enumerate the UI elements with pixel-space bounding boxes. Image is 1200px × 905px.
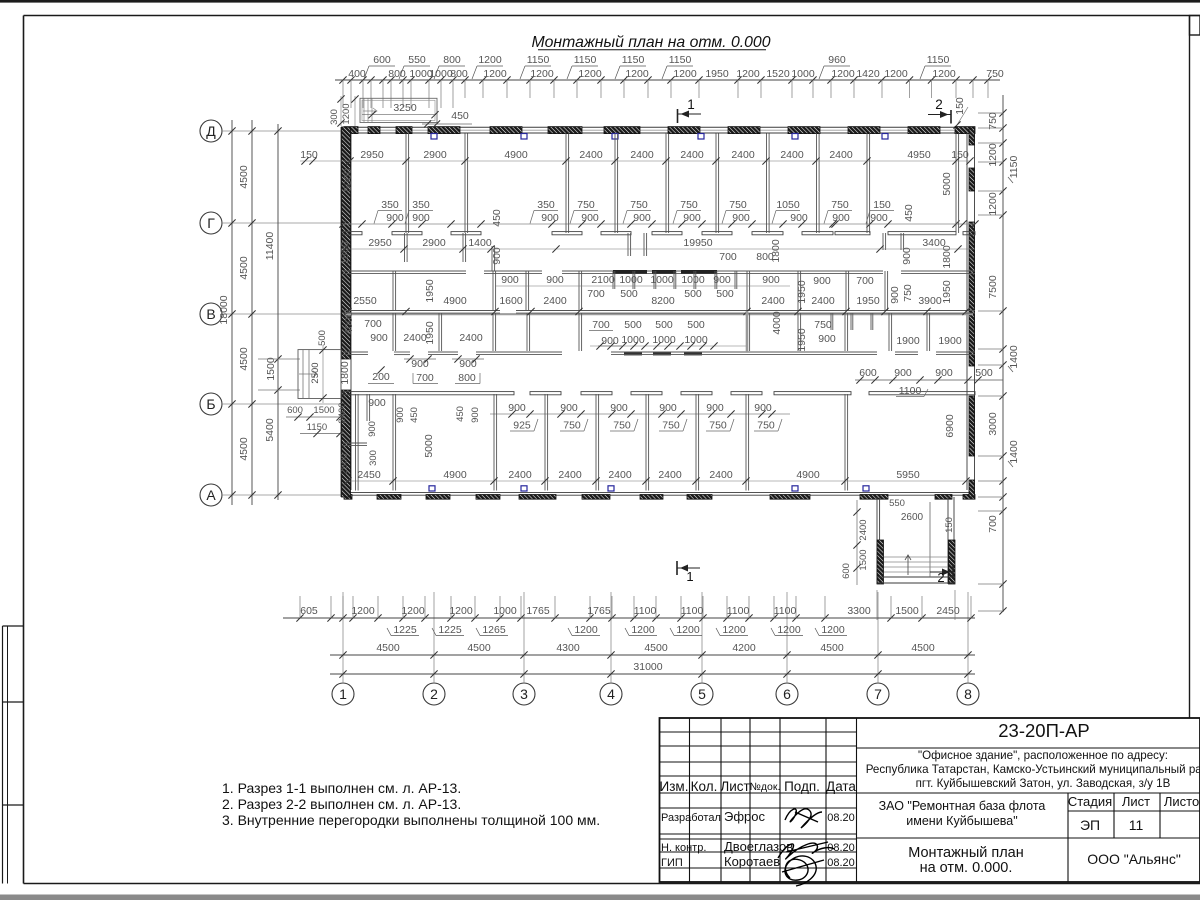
svg-text:700: 700 xyxy=(856,275,874,287)
svg-text:3: 3 xyxy=(520,686,528,702)
svg-text:4500: 4500 xyxy=(467,642,491,654)
svg-text:900: 900 xyxy=(935,367,953,379)
svg-text:19950: 19950 xyxy=(683,237,712,249)
svg-text:Листов: Листов xyxy=(1164,794,1200,809)
svg-text:900: 900 xyxy=(713,274,731,286)
svg-text:1200: 1200 xyxy=(736,68,760,80)
svg-text:900: 900 xyxy=(832,212,850,224)
svg-text:2550: 2550 xyxy=(353,295,377,307)
svg-text:2400: 2400 xyxy=(731,149,755,161)
svg-text:1500: 1500 xyxy=(858,549,869,570)
svg-text:В: В xyxy=(206,306,215,322)
svg-text:2600: 2600 xyxy=(901,512,924,523)
svg-text:1225: 1225 xyxy=(438,624,462,636)
svg-text:500: 500 xyxy=(317,330,328,346)
svg-text:1150: 1150 xyxy=(927,54,950,66)
svg-text:1200: 1200 xyxy=(777,624,801,636)
svg-text:1800: 1800 xyxy=(339,241,351,265)
svg-text:925: 925 xyxy=(513,420,531,432)
svg-text:№док.: №док. xyxy=(750,781,781,793)
svg-text:900: 900 xyxy=(581,212,599,224)
svg-text:4900: 4900 xyxy=(443,295,467,307)
svg-text:1: 1 xyxy=(686,569,693,584)
svg-text:4500: 4500 xyxy=(238,347,250,371)
svg-text:7500: 7500 xyxy=(987,275,999,299)
svg-text:3. Внутренние перегородки выпо: 3. Внутренние перегородки выполнены толщ… xyxy=(222,812,600,828)
svg-text:4900: 4900 xyxy=(443,469,467,481)
svg-text:500: 500 xyxy=(687,319,705,331)
svg-text:1500: 1500 xyxy=(313,405,334,416)
svg-text:1200: 1200 xyxy=(831,68,855,80)
svg-text:1950: 1950 xyxy=(796,328,808,352)
svg-text:750: 750 xyxy=(987,112,999,130)
svg-text:900: 900 xyxy=(706,402,724,414)
svg-text:2400: 2400 xyxy=(543,295,567,307)
svg-text:5000: 5000 xyxy=(342,168,354,192)
svg-text:2400: 2400 xyxy=(761,295,785,307)
svg-text:900: 900 xyxy=(386,212,404,224)
svg-text:2950: 2950 xyxy=(368,237,392,249)
svg-text:750: 750 xyxy=(709,420,727,432)
svg-text:Дата: Дата xyxy=(826,779,856,794)
svg-text:900: 900 xyxy=(610,402,628,414)
svg-text:Г: Г xyxy=(207,215,215,231)
svg-text:1500: 1500 xyxy=(895,605,919,617)
svg-text:1765: 1765 xyxy=(587,605,611,617)
svg-text:400: 400 xyxy=(348,68,366,80)
svg-text:5000: 5000 xyxy=(941,172,953,196)
svg-text:4500: 4500 xyxy=(376,642,400,654)
svg-text:1200: 1200 xyxy=(578,68,602,80)
svg-text:2400: 2400 xyxy=(658,469,682,481)
svg-text:1200: 1200 xyxy=(987,192,999,216)
svg-text:ЗАО "Ремонтная база флота: ЗАО "Ремонтная база флота xyxy=(879,799,1046,813)
svg-text:605: 605 xyxy=(300,605,318,617)
svg-text:1200: 1200 xyxy=(351,605,375,617)
svg-text:900: 900 xyxy=(395,407,406,423)
svg-text:4500: 4500 xyxy=(238,437,250,461)
svg-text:3250: 3250 xyxy=(393,102,417,114)
svg-text:6900: 6900 xyxy=(944,414,956,438)
svg-text:1600: 1600 xyxy=(499,295,523,307)
svg-text:700: 700 xyxy=(416,372,434,384)
svg-text:500: 500 xyxy=(655,319,673,331)
svg-text:4200: 4200 xyxy=(732,642,756,654)
svg-text:550: 550 xyxy=(889,498,905,509)
svg-text:750: 750 xyxy=(577,199,595,211)
svg-text:11: 11 xyxy=(1129,817,1144,833)
svg-text:"Офисное здание", расположенно: "Офисное здание", расположенное по адрес… xyxy=(918,749,1168,762)
svg-text:2900: 2900 xyxy=(423,149,447,161)
svg-text:1900: 1900 xyxy=(938,335,962,347)
svg-text:2100: 2100 xyxy=(591,274,615,286)
svg-text:ООО "Альянс": ООО "Альянс" xyxy=(1087,851,1181,867)
svg-text:8: 8 xyxy=(964,686,972,702)
svg-text:ЭП: ЭП xyxy=(1080,817,1100,833)
svg-text:1200: 1200 xyxy=(722,624,746,636)
svg-text:900: 900 xyxy=(732,212,750,224)
svg-text:1200: 1200 xyxy=(932,68,956,80)
svg-text:1000: 1000 xyxy=(791,68,815,80)
svg-text:1100: 1100 xyxy=(634,605,657,617)
svg-text:1200: 1200 xyxy=(987,143,999,167)
svg-text:500: 500 xyxy=(624,319,642,331)
svg-text:Разработал: Разработал xyxy=(661,812,721,824)
svg-text:450: 450 xyxy=(451,110,469,122)
svg-text:450: 450 xyxy=(903,204,915,222)
svg-text:900: 900 xyxy=(889,286,901,304)
svg-text:150: 150 xyxy=(954,97,966,115)
svg-text:1950: 1950 xyxy=(424,279,436,303)
svg-text:960: 960 xyxy=(828,54,846,66)
svg-text:4000: 4000 xyxy=(771,311,783,335)
svg-text:2450: 2450 xyxy=(936,605,960,617)
svg-text:750: 750 xyxy=(986,68,1004,80)
svg-text:1200: 1200 xyxy=(884,68,908,80)
svg-text:Н. контр.: Н. контр. xyxy=(661,842,706,854)
svg-text:150: 150 xyxy=(951,149,969,161)
svg-text:700: 700 xyxy=(987,515,999,533)
svg-text:900: 900 xyxy=(818,333,836,345)
svg-text:2400: 2400 xyxy=(709,469,733,481)
svg-text:900: 900 xyxy=(659,402,677,414)
svg-text:1150: 1150 xyxy=(1008,156,1020,179)
svg-text:Монтажный план: Монтажный план xyxy=(908,845,1024,861)
svg-text:600: 600 xyxy=(841,563,852,579)
svg-text:4950: 4950 xyxy=(907,149,931,161)
svg-text:750: 750 xyxy=(757,420,775,432)
svg-text:1200: 1200 xyxy=(401,605,425,617)
svg-text:2500: 2500 xyxy=(339,453,350,474)
svg-text:900: 900 xyxy=(459,358,477,370)
svg-text:750: 750 xyxy=(662,420,680,432)
svg-text:1200: 1200 xyxy=(821,624,845,636)
svg-text:2400: 2400 xyxy=(680,149,704,161)
svg-text:1200: 1200 xyxy=(483,68,507,80)
svg-text:900: 900 xyxy=(601,335,619,347)
svg-text:600: 600 xyxy=(373,54,391,66)
svg-text:5400: 5400 xyxy=(264,418,276,442)
svg-text:900: 900 xyxy=(790,212,808,224)
svg-text:800: 800 xyxy=(443,54,461,66)
svg-text:900: 900 xyxy=(411,358,429,370)
svg-text:450: 450 xyxy=(409,407,420,423)
svg-text:Эфрос: Эфрос xyxy=(724,809,765,824)
svg-text:200: 200 xyxy=(372,371,390,383)
svg-text:5950: 5950 xyxy=(896,469,920,481)
svg-text:2400: 2400 xyxy=(579,149,603,161)
svg-text:350: 350 xyxy=(412,199,430,211)
svg-text:750: 750 xyxy=(814,319,832,331)
svg-text:750: 750 xyxy=(729,199,747,211)
svg-text:150: 150 xyxy=(944,517,955,533)
svg-text:4500: 4500 xyxy=(644,642,668,654)
svg-text:1000: 1000 xyxy=(652,334,676,346)
svg-text:4300: 4300 xyxy=(556,642,580,654)
svg-text:Республика Татарстан, Камско-У: Республика Татарстан, Камско-Устьинский … xyxy=(866,763,1200,776)
svg-text:350: 350 xyxy=(537,199,555,211)
svg-text:2500: 2500 xyxy=(310,362,321,383)
svg-text:1225: 1225 xyxy=(393,624,417,636)
svg-text:750: 750 xyxy=(613,420,631,432)
svg-text:Д: Д xyxy=(206,123,216,139)
svg-text:имени Куйбышева": имени Куйбышева" xyxy=(906,814,1017,828)
svg-text:350: 350 xyxy=(381,199,399,211)
svg-text:900: 900 xyxy=(501,274,519,286)
svg-text:3000: 3000 xyxy=(987,412,999,436)
svg-text:Стадия: Стадия xyxy=(1068,794,1112,809)
svg-text:900: 900 xyxy=(560,402,578,414)
svg-text:2400: 2400 xyxy=(508,469,532,481)
svg-text:900: 900 xyxy=(683,212,701,224)
svg-text:550: 550 xyxy=(408,54,426,66)
svg-text:900: 900 xyxy=(754,402,772,414)
svg-text:08.20: 08.20 xyxy=(827,812,855,824)
svg-text:2900: 2900 xyxy=(422,237,446,249)
svg-text:1420: 1420 xyxy=(856,68,880,80)
svg-text:1950: 1950 xyxy=(856,295,880,307)
svg-text:900: 900 xyxy=(633,212,651,224)
svg-text:1265: 1265 xyxy=(482,624,506,636)
svg-text:1150: 1150 xyxy=(574,54,597,66)
svg-text:750: 750 xyxy=(902,284,914,302)
svg-text:500: 500 xyxy=(975,367,993,379)
svg-text:2400: 2400 xyxy=(459,332,483,344)
svg-text:1000: 1000 xyxy=(681,274,705,286)
svg-text:450: 450 xyxy=(455,406,466,422)
svg-text:1950: 1950 xyxy=(796,280,808,304)
svg-text:4500: 4500 xyxy=(820,642,844,654)
svg-text:900: 900 xyxy=(367,421,378,437)
svg-text:1200: 1200 xyxy=(625,68,649,80)
svg-text:1900: 1900 xyxy=(896,335,920,347)
svg-text:2400: 2400 xyxy=(811,295,835,307)
svg-text:18000: 18000 xyxy=(218,295,230,324)
svg-text:900: 900 xyxy=(762,274,780,286)
svg-text:2400: 2400 xyxy=(630,149,654,161)
svg-text:ГИП: ГИП xyxy=(661,857,683,869)
svg-text:08.20: 08.20 xyxy=(827,857,855,869)
svg-text:1200: 1200 xyxy=(676,624,700,636)
svg-text:на отм. 0.000.: на отм. 0.000. xyxy=(920,860,1013,876)
svg-text:600: 600 xyxy=(859,367,877,379)
svg-text:1: 1 xyxy=(687,97,695,112)
svg-text:6: 6 xyxy=(783,686,791,702)
svg-text:700: 700 xyxy=(587,288,605,300)
svg-text:7: 7 xyxy=(874,686,882,702)
svg-text:8200: 8200 xyxy=(651,295,675,307)
svg-text:1800: 1800 xyxy=(339,361,351,385)
svg-text:1400: 1400 xyxy=(1008,440,1020,464)
svg-text:4900: 4900 xyxy=(796,469,820,481)
svg-text:1150: 1150 xyxy=(669,54,692,66)
svg-text:1200: 1200 xyxy=(530,68,554,80)
svg-text:1000: 1000 xyxy=(493,605,517,617)
svg-text:23-20П-АР: 23-20П-АР xyxy=(998,720,1089,741)
svg-text:2400: 2400 xyxy=(780,149,804,161)
svg-text:Лист: Лист xyxy=(720,779,749,794)
svg-text:11400: 11400 xyxy=(264,232,276,261)
svg-text:А: А xyxy=(206,487,216,503)
svg-text:1000: 1000 xyxy=(650,274,674,286)
svg-text:4000: 4000 xyxy=(343,311,355,335)
svg-text:1. Разрез 1-1 выполнен см. л.: 1. Разрез 1-1 выполнен см. л. АР-13. xyxy=(222,780,461,796)
svg-text:Кол.: Кол. xyxy=(691,779,718,794)
svg-text:3300: 3300 xyxy=(847,605,871,617)
svg-text:Лист: Лист xyxy=(1122,794,1150,809)
svg-text:500: 500 xyxy=(684,288,702,300)
svg-text:500: 500 xyxy=(620,288,638,300)
svg-text:1150: 1150 xyxy=(307,422,327,433)
svg-text:700: 700 xyxy=(592,319,610,331)
svg-text:2400: 2400 xyxy=(608,469,632,481)
svg-text:900: 900 xyxy=(470,407,481,423)
svg-text:1000: 1000 xyxy=(619,274,643,286)
svg-text:1950: 1950 xyxy=(424,321,436,345)
svg-text:900: 900 xyxy=(491,247,503,265)
svg-text:2950: 2950 xyxy=(360,149,384,161)
svg-text:1: 1 xyxy=(339,686,347,702)
svg-text:900: 900 xyxy=(541,212,559,224)
svg-text:1100: 1100 xyxy=(774,605,797,617)
svg-text:150: 150 xyxy=(873,199,891,211)
svg-text:2: 2 xyxy=(430,686,438,702)
svg-text:750: 750 xyxy=(563,420,581,432)
svg-text:500: 500 xyxy=(716,288,734,300)
svg-text:2400: 2400 xyxy=(558,469,582,481)
svg-text:Б: Б xyxy=(206,396,215,412)
svg-text:750: 750 xyxy=(680,199,698,211)
svg-text:800: 800 xyxy=(756,251,774,263)
svg-text:2400: 2400 xyxy=(829,149,853,161)
svg-text:700: 700 xyxy=(719,251,737,263)
svg-text:4500: 4500 xyxy=(238,256,250,280)
svg-text:3900: 3900 xyxy=(918,295,942,307)
svg-text:300: 300 xyxy=(329,109,340,125)
svg-text:Монтажный план на отм. 0.000: Монтажный план на отм. 0.000 xyxy=(531,34,770,51)
svg-text:5000: 5000 xyxy=(423,434,435,458)
svg-text:1200: 1200 xyxy=(449,605,473,617)
svg-text:1765: 1765 xyxy=(526,605,550,617)
svg-text:1800: 1800 xyxy=(941,245,953,269)
svg-text:1200: 1200 xyxy=(574,624,598,636)
svg-text:2400: 2400 xyxy=(337,402,348,423)
svg-text:750: 750 xyxy=(831,199,849,211)
svg-text:800: 800 xyxy=(388,68,406,80)
svg-text:900: 900 xyxy=(508,402,526,414)
svg-text:2: 2 xyxy=(937,570,944,585)
svg-text:1950: 1950 xyxy=(941,280,953,304)
svg-text:1150: 1150 xyxy=(527,54,550,66)
svg-text:1200: 1200 xyxy=(631,624,655,636)
svg-text:Подп.: Подп. xyxy=(784,779,820,794)
svg-text:4500: 4500 xyxy=(238,165,250,189)
svg-text:4500: 4500 xyxy=(911,642,935,654)
svg-text:1500: 1500 xyxy=(265,357,277,381)
svg-text:300: 300 xyxy=(368,450,379,466)
svg-text:31000: 31000 xyxy=(633,661,662,673)
svg-text:750: 750 xyxy=(630,199,648,211)
svg-text:900: 900 xyxy=(546,274,564,286)
svg-text:1200: 1200 xyxy=(673,68,697,80)
svg-text:900: 900 xyxy=(368,397,386,409)
svg-text:4900: 4900 xyxy=(504,149,528,161)
svg-text:1050: 1050 xyxy=(776,199,800,211)
svg-text:450: 450 xyxy=(491,209,503,227)
svg-text:900: 900 xyxy=(894,367,912,379)
svg-text:900: 900 xyxy=(870,212,888,224)
svg-text:2450: 2450 xyxy=(357,469,381,481)
svg-text:1150: 1150 xyxy=(622,54,645,66)
svg-text:1520: 1520 xyxy=(766,68,790,80)
svg-text:5: 5 xyxy=(698,686,706,702)
svg-text:1100: 1100 xyxy=(727,605,750,617)
svg-text:Коротаев: Коротаев xyxy=(724,854,780,869)
svg-text:1100: 1100 xyxy=(899,385,922,397)
svg-text:900: 900 xyxy=(901,247,913,265)
svg-text:2: 2 xyxy=(935,97,943,112)
svg-text:2400: 2400 xyxy=(858,519,869,540)
svg-text:900: 900 xyxy=(813,275,831,287)
svg-text:Изм.: Изм. xyxy=(660,779,689,794)
svg-text:1100: 1100 xyxy=(681,605,704,617)
svg-text:800: 800 xyxy=(450,68,468,80)
svg-text:пгт. Куйбышевский Затон, ул. З: пгт. Куйбышевский Затон, ул. Заводская, … xyxy=(916,777,1171,790)
svg-text:700: 700 xyxy=(364,318,382,330)
svg-text:800: 800 xyxy=(458,372,476,384)
svg-text:1200: 1200 xyxy=(478,54,502,66)
svg-text:2. Разрез 2-2 выполнен см. л.: 2. Разрез 2-2 выполнен см. л. АР-13. xyxy=(222,796,461,812)
svg-text:900: 900 xyxy=(370,332,388,344)
svg-text:1950: 1950 xyxy=(705,68,729,80)
svg-text:900: 900 xyxy=(412,212,430,224)
svg-text:1400: 1400 xyxy=(468,237,492,249)
svg-text:1400: 1400 xyxy=(1008,345,1020,369)
svg-text:4: 4 xyxy=(607,686,615,702)
